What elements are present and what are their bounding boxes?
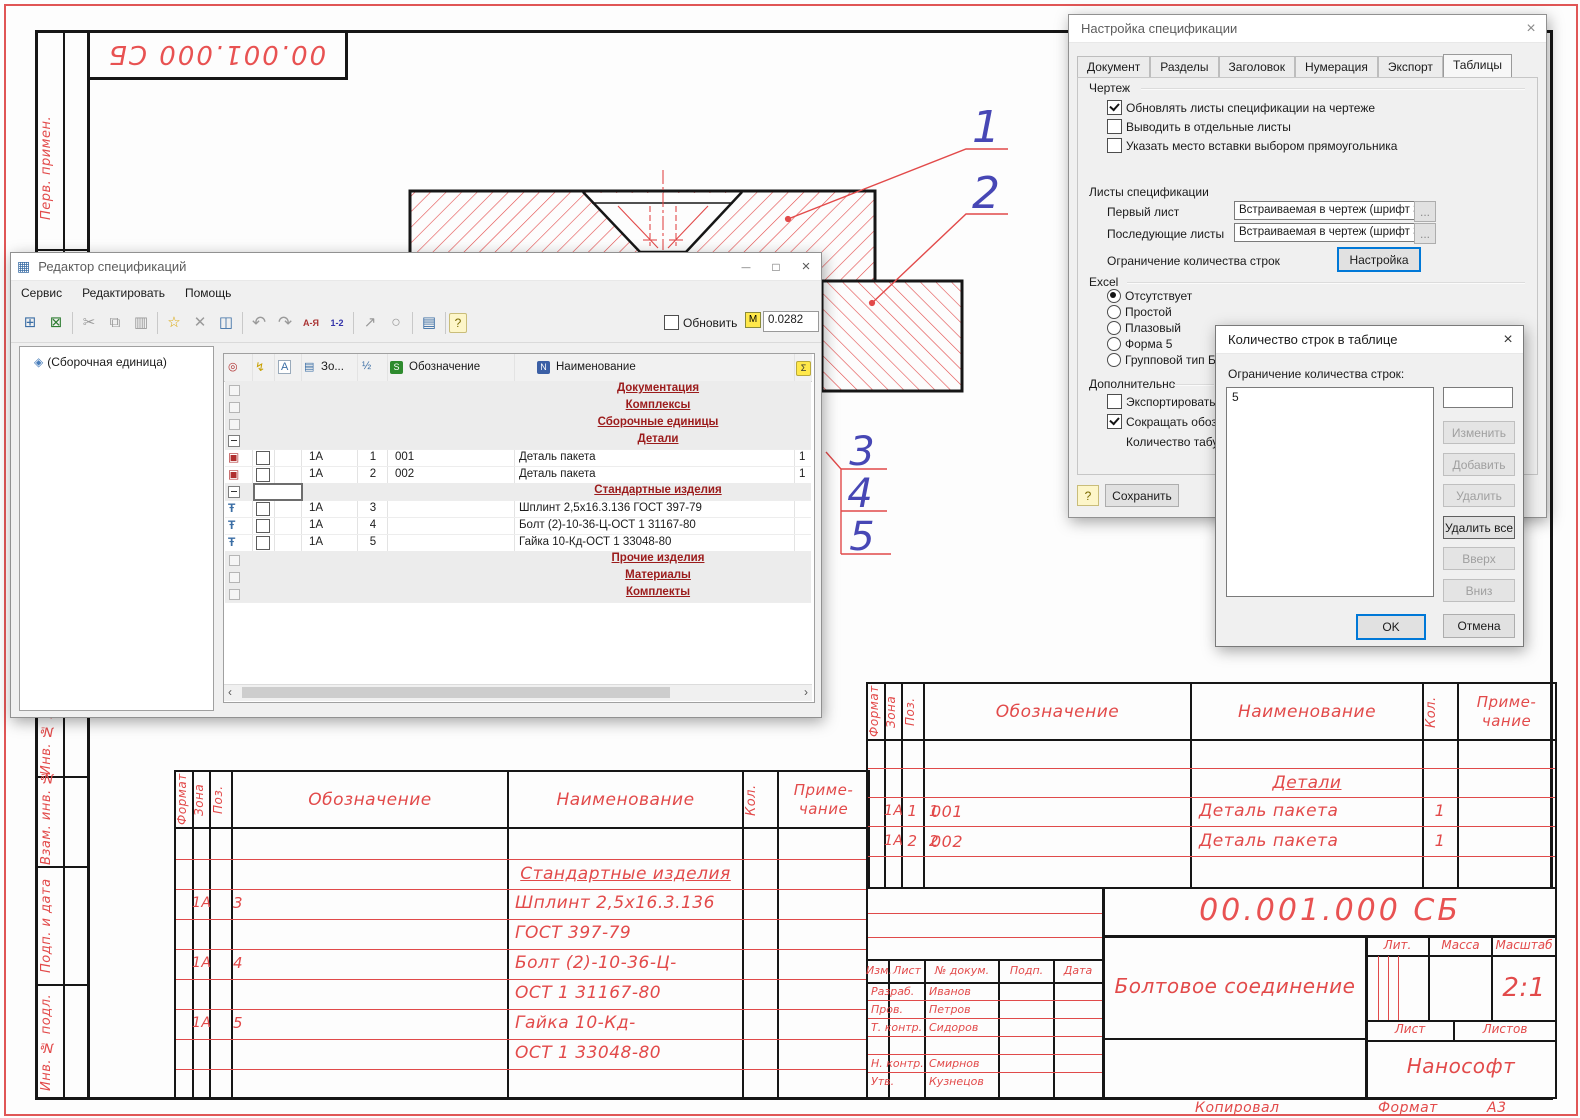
- stamp-row-label: Пров.: [871, 1003, 903, 1016]
- save-button[interactable]: Сохранить: [1105, 484, 1179, 507]
- tree-item-label: (Сборочная единица): [47, 355, 167, 369]
- up-button[interactable]: Вверх: [1443, 547, 1515, 570]
- grid-header: ◎ ↯ A ▤ Зо... ½ S Обозначение N Наименов…: [224, 354, 812, 382]
- radio-prostoy[interactable]: [1107, 305, 1121, 319]
- close-button[interactable]: ×: [791, 258, 821, 275]
- scroll-thumb[interactable]: [242, 687, 670, 698]
- cell-oboz: 002: [931, 832, 963, 851]
- col-header-kol: Кол.: [1424, 687, 1456, 737]
- radio-prostoy-label: Простой: [1125, 305, 1172, 319]
- cell-naim: Болт (2)-10-36-Ц-: [515, 953, 677, 973]
- auxnum-column-icon[interactable]: A: [278, 360, 291, 374]
- radio-gruppovoy[interactable]: [1107, 353, 1121, 367]
- detail-icon: ▣: [228, 467, 239, 481]
- spec-editor-window: ▦ Редактор спецификаций — □ × Сервис Ред…: [10, 252, 822, 718]
- row-checkbox[interactable]: [256, 536, 270, 550]
- tree-item-assembly[interactable]: ◈ (Сборочная единица): [34, 355, 213, 369]
- col-header-prim1: Приме-: [1459, 693, 1554, 711]
- row-count-dialog: Количество строк в таблице × Ограничение…: [1215, 325, 1524, 647]
- section-row[interactable]: Комплекты: [225, 585, 811, 603]
- tab-zagolovok[interactable]: Заголовок: [1219, 56, 1295, 77]
- col-header-kol: Кол.: [744, 775, 776, 825]
- down-button[interactable]: Вниз: [1443, 579, 1515, 602]
- cell-naim: Гайка 10-Кд-: [515, 1013, 636, 1033]
- menu-redaktirovat[interactable]: Редактировать: [82, 286, 165, 300]
- first-sheet-label: Первый лист: [1107, 205, 1179, 219]
- title-block: 00.001.000 СБ Изм. Лист № докум. Подп. Д…: [866, 887, 1557, 1099]
- listov-label: Листов: [1455, 1022, 1555, 1036]
- col-header-poz: Поз.: [211, 775, 230, 825]
- cell-poz: 3: [233, 894, 257, 912]
- callout-4: 4: [847, 471, 872, 517]
- detail-icon: ▣: [228, 450, 239, 464]
- tab-strip: ДокументРазделыЗаголовокНумерацияЭкспорт…: [1077, 56, 1512, 79]
- stamp-row-label: Н. контр.: [871, 1057, 924, 1070]
- scroll-right-arrow[interactable]: ›: [804, 685, 808, 699]
- company-name: Нанософт: [1367, 1054, 1555, 1078]
- update-sheets-label: Обновлять листы спецификации на чертеже: [1126, 101, 1375, 115]
- dialog-title: Настройка спецификации: [1081, 21, 1237, 36]
- insert-place-label: Указать место вставки выбором прямоуголь…: [1126, 139, 1397, 153]
- cell-zona: 1А: [192, 1015, 210, 1031]
- radio-plazovy[interactable]: [1107, 321, 1121, 335]
- stamp-row-label: Т. контр.: [871, 1021, 922, 1034]
- sum-column-icon: Σ: [796, 361, 811, 376]
- update-sheets-checkbox[interactable]: [1107, 100, 1122, 115]
- tab-numeraciya[interactable]: Нумерация: [1295, 56, 1378, 77]
- pin-column-icon[interactable]: ◎: [228, 360, 238, 373]
- row-checkbox[interactable]: [256, 451, 270, 465]
- cell-poz: 5: [233, 1014, 257, 1032]
- update-checkbox[interactable]: [664, 315, 679, 330]
- col-header-naim: Наименование: [509, 790, 742, 810]
- cell-naim: ОСТ 1 31167-80: [515, 983, 661, 1003]
- item-row[interactable]: Ŧ 1A5 Гайка 10-Кд-ОСТ 1 33048-80: [225, 534, 811, 552]
- menu-servis[interactable]: Сервис: [21, 286, 62, 300]
- next-sheets-field[interactable]: Встраиваемая в чертеж (шрифт 3,5: [1234, 223, 1415, 242]
- shorten-checkbox[interactable]: [1107, 414, 1122, 429]
- format-label: Формат: [1378, 1100, 1438, 1116]
- properties-icon[interactable]: ▤: [416, 311, 442, 335]
- radio-otsutstvuet-label: Отсутствует: [1125, 289, 1192, 303]
- cell-poz: 4: [233, 954, 257, 972]
- cell-kol: 1: [1424, 801, 1456, 820]
- delete-button[interactable]: Удалить: [1443, 484, 1515, 507]
- export-checkbox[interactable]: [1107, 394, 1122, 409]
- window-title: Редактор спецификаций: [38, 259, 186, 274]
- editor-titlebar[interactable]: ▦ Редактор спецификаций — □ ×: [11, 253, 821, 281]
- collapse-icon[interactable]: [228, 435, 240, 447]
- section-row[interactable]: Детали: [225, 432, 811, 450]
- col-header-naim: Наименование: [1192, 702, 1422, 722]
- doc-number: 00.001.000 СБ: [1105, 893, 1555, 928]
- search-icon[interactable]: ○: [383, 311, 409, 335]
- stamp-list: Лист: [889, 964, 925, 977]
- tab-tablicy[interactable]: Таблицы: [1443, 54, 1512, 77]
- structure-tree-panel: ◈ (Сборочная единица): [19, 346, 214, 711]
- stamp-row-name: Кузнецов: [929, 1075, 984, 1088]
- dialog-title: Количество строк в таблице: [1228, 332, 1397, 347]
- row-limit-label: Ограничение количества строк: [1107, 254, 1280, 268]
- cut-icon[interactable]: ✂: [76, 311, 102, 335]
- radio-otsutstvuet[interactable]: [1107, 289, 1121, 303]
- list-item[interactable]: 5: [1232, 390, 1239, 404]
- close-icon[interactable]: ×: [1516, 20, 1546, 38]
- stamp-data: Дата: [1054, 964, 1102, 977]
- row-checkbox[interactable]: [256, 468, 270, 482]
- next-sheets-label: Последующие листы: [1107, 227, 1224, 241]
- menu-pomosch[interactable]: Помощь: [185, 286, 231, 300]
- minimize-button[interactable]: —: [731, 262, 761, 272]
- cell-zona: 1А: [192, 895, 210, 911]
- redo-icon[interactable]: ↷: [272, 311, 298, 335]
- std-part-icon: Ŧ: [228, 518, 235, 532]
- section-row[interactable]: Прочие изделия: [225, 551, 811, 569]
- scroll-left-arrow[interactable]: ‹: [228, 685, 232, 699]
- tab-eksport[interactable]: Экспорт: [1378, 56, 1443, 77]
- update-label: Обновить: [683, 316, 737, 330]
- next-sheets-browse-button[interactable]: ...: [1414, 223, 1436, 244]
- std-part-icon: Ŧ: [228, 535, 235, 549]
- change-button[interactable]: Изменить: [1443, 421, 1515, 444]
- cell-poz2: 2: [903, 832, 922, 850]
- cell-naim: Деталь пакета: [1199, 831, 1338, 851]
- stamp-podp: Подп.: [999, 964, 1054, 977]
- section-title: Детали: [1192, 773, 1422, 793]
- maximize-button[interactable]: □: [761, 260, 791, 274]
- section-row[interactable]: Комплексы: [225, 398, 811, 416]
- horizontal-scrollbar[interactable]: ‹ ›: [224, 684, 812, 701]
- cell-zona: 1А: [192, 955, 210, 971]
- col-header-zona: Зона: [192, 775, 208, 825]
- callout-3: 3: [849, 429, 874, 475]
- position-icon[interactable]: ◫: [213, 311, 239, 335]
- first-sheet-field[interactable]: Встраиваемая в чертеж (шрифт 3,5: [1234, 201, 1415, 220]
- delete-icon[interactable]: ✕: [187, 311, 213, 335]
- kopiroval-label: Копировал: [1195, 1100, 1280, 1116]
- row-marker: [229, 385, 240, 396]
- item-row[interactable]: Ŧ 1A4 Болт (2)-10-36-Ц-ОСТ 1 31167-80: [225, 517, 811, 535]
- row-marker: [229, 402, 240, 413]
- cell-naim: ГОСТ 397-79: [515, 923, 631, 943]
- editor-toolbar: ⊞ ⊠ ✂ ⧉ ▥ ☆ ✕ ◫ ↶ ↷ А-Я 1-2 ↗ ○ ▤ ? Обно…: [11, 304, 821, 343]
- col-header-oboz: Обозначение: [233, 790, 507, 810]
- cell-poz2: 1: [903, 802, 922, 820]
- help-icon[interactable]: ?: [449, 313, 467, 333]
- dialog-help-button[interactable]: ?: [1077, 485, 1099, 506]
- group-excel-label: Excel: [1089, 275, 1118, 289]
- copy-icon[interactable]: ⧉: [102, 311, 128, 335]
- paste-icon[interactable]: ▥: [128, 311, 154, 335]
- section-row[interactable]: Документация: [225, 381, 811, 399]
- spec-table-right: Формат Зона Поз. Обозначение Наименовани…: [866, 682, 1557, 891]
- stamp-izm: Изм.: [866, 964, 890, 977]
- zona-column-icon: ▤: [304, 360, 314, 373]
- limit-label: Ограничение количества строк:: [1228, 367, 1404, 381]
- mass-badge-icon: М: [745, 312, 761, 328]
- new-item-icon[interactable]: ☆: [161, 311, 187, 335]
- power-column-icon[interactable]: ↯: [255, 360, 265, 374]
- row-marker: [229, 419, 240, 430]
- stamp-row-name: Сидоров: [929, 1021, 978, 1034]
- std-part-icon: Ŧ: [228, 501, 235, 515]
- delete-all-button[interactable]: Удалить все: [1443, 516, 1515, 539]
- export-excel-icon[interactable]: ⊠: [43, 311, 69, 335]
- stamp-row-label: Разраб.: [871, 985, 914, 998]
- separate-sheets-label: Выводить в отдельные листы: [1126, 120, 1291, 134]
- assembly-icon: ◈: [34, 355, 43, 369]
- editor-menubar: Сервис Редактировать Помощь: [11, 281, 821, 304]
- massa-label: Масса: [1430, 938, 1491, 952]
- section-row[interactable]: Сборочные единицы: [225, 415, 811, 433]
- col-header-prim1: Приме-: [779, 781, 868, 799]
- insert-place-checkbox[interactable]: [1107, 138, 1122, 153]
- cell-naim: ОСТ 1 33048-80: [515, 1043, 661, 1063]
- cell-kol: 1: [1424, 831, 1456, 850]
- lower-plate: [822, 281, 962, 391]
- format-value: А3: [1487, 1100, 1506, 1116]
- callout-1: 1: [972, 102, 1000, 153]
- tab-dokument[interactable]: Документ: [1077, 56, 1150, 77]
- stamp-row-label: Утв.: [871, 1075, 894, 1088]
- callout-5: 5: [849, 514, 874, 560]
- cell-naim: Деталь пакета: [1199, 801, 1338, 821]
- cell-zona: 1А: [884, 803, 902, 819]
- cancel-button[interactable]: Отмена: [1443, 614, 1515, 638]
- lit-label: Лит.: [1367, 938, 1428, 952]
- group-additional-label: Дополнительно: [1089, 377, 1175, 391]
- row-checkbox[interactable]: [256, 519, 270, 533]
- poz-column-icon[interactable]: ½: [362, 360, 371, 372]
- group-drawing-label: Чертеж: [1089, 81, 1130, 95]
- row-limit-setup-button[interactable]: Настройка: [1337, 247, 1421, 272]
- selected-cell[interactable]: [253, 483, 303, 501]
- col-header-zona: Зона: [884, 687, 900, 737]
- sheets-group-label: Листы спецификации: [1089, 185, 1209, 199]
- col-header-oboz: Обозначение: [925, 702, 1190, 722]
- ok-button[interactable]: OK: [1356, 614, 1426, 640]
- drawing-title: Болтовое соединение: [1105, 974, 1365, 998]
- radio-gruppovoy-label: Групповой тип Б: [1125, 353, 1216, 367]
- row-checkbox[interactable]: [256, 502, 270, 516]
- oboz-column-label[interactable]: Обозначение: [409, 361, 480, 373]
- collapse-icon[interactable]: [228, 486, 240, 498]
- spec-table-left: Формат Зона Поз. Обозначение Наименовани…: [174, 770, 870, 1099]
- naim-column-icon: N: [537, 361, 550, 374]
- item-row[interactable]: Ŧ 1A3 Шплинт 2,5х16.3.136 ГОСТ 397-79: [225, 500, 811, 518]
- col-header-prim2: чание: [1459, 712, 1554, 730]
- add-to-drawing-icon[interactable]: ⊞: [17, 311, 43, 335]
- app-icon: ▦: [17, 258, 30, 275]
- limit-listbox[interactable]: 5: [1226, 387, 1434, 597]
- oboz-column-icon: S: [390, 361, 403, 374]
- close-icon[interactable]: ×: [1493, 331, 1523, 349]
- stamp-row-name: Смирнов: [929, 1057, 980, 1070]
- stamp-ndokum: № докум.: [925, 964, 999, 977]
- spec-grid-panel: ◎ ↯ A ▤ Зо... ½ S Обозначение N Наименов…: [223, 353, 815, 703]
- col-header-format: Формат: [175, 775, 191, 825]
- masshtab-label: Масштаб: [1493, 938, 1555, 952]
- stamp-row-name: Иванов: [929, 985, 971, 998]
- sort-num-icon[interactable]: 1-2: [324, 311, 350, 335]
- undo-icon[interactable]: ↶: [246, 311, 272, 335]
- add-button[interactable]: Добавить: [1443, 453, 1515, 476]
- radio-plazovy-label: Плазовый: [1125, 321, 1181, 335]
- row-marker: [229, 572, 240, 583]
- section-row-selected[interactable]: Стандартные изделия: [225, 483, 811, 501]
- cell-oboz: 001: [931, 802, 963, 821]
- cell-zona: 1А: [884, 833, 902, 849]
- mass-value-field[interactable]: 0.0282: [763, 311, 819, 332]
- settings-titlebar[interactable]: Настройка спецификации ×: [1069, 15, 1546, 43]
- section-title: Стандартные изделия: [509, 864, 742, 884]
- list-label: Лист: [1367, 1022, 1453, 1036]
- leader-icon[interactable]: ↗: [357, 311, 383, 335]
- radio-forma5[interactable]: [1107, 337, 1121, 351]
- tab-razdely[interactable]: Разделы: [1150, 56, 1218, 77]
- scale-value: 2:1: [1493, 973, 1555, 1003]
- item-row[interactable]: ▣ 1A2 002Деталь пакета 1: [225, 466, 811, 484]
- cell-naim: Шплинт 2,5х16.3.136: [515, 893, 715, 913]
- stamp-row-name: Петров: [929, 1003, 971, 1016]
- section-row[interactable]: Материалы: [225, 568, 811, 586]
- row-marker: [229, 555, 240, 566]
- naim-column-label[interactable]: Наименование: [556, 361, 636, 373]
- col-header-prim2: чание: [779, 800, 868, 818]
- col-header-format: Формат: [867, 687, 883, 737]
- item-row[interactable]: ▣ 1A1 001Деталь пакета 1: [225, 449, 811, 467]
- first-sheet-browse-button[interactable]: ...: [1414, 201, 1436, 222]
- limit-input[interactable]: [1443, 387, 1513, 408]
- radio-forma5-label: Форма 5: [1125, 337, 1172, 351]
- col-header-poz: Поз.: [903, 687, 922, 737]
- callout-2: 2: [972, 168, 1000, 219]
- separate-sheets-checkbox[interactable]: [1107, 119, 1122, 134]
- grid-rows: Документация Комплексы Сборочные единицы…: [224, 381, 812, 602]
- rowcount-titlebar[interactable]: Количество строк в таблице ×: [1216, 326, 1523, 354]
- zona-column-label[interactable]: Зо...: [321, 361, 344, 373]
- sort-alpha-icon[interactable]: А-Я: [298, 311, 324, 335]
- row-marker: [229, 589, 240, 600]
